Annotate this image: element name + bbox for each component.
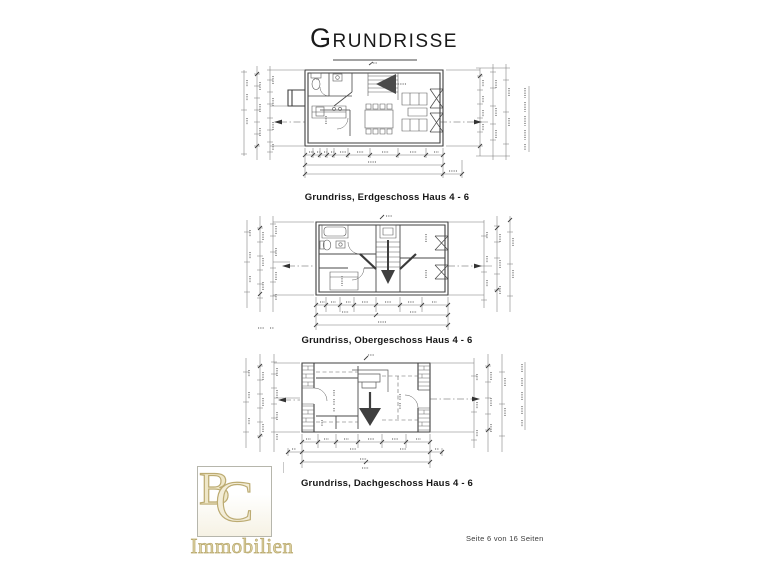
- dimension-numbers: [249, 355, 522, 468]
- dimension-lines: [243, 354, 525, 468]
- page-number: Seite 6 von 16 Seiten: [466, 534, 544, 543]
- center-axis: [284, 399, 474, 400]
- logo-frame-tick: [283, 462, 284, 473]
- furniture: [311, 73, 427, 134]
- partitions: [308, 73, 352, 136]
- dimension-numbers: [250, 216, 513, 328]
- stair-arrow: [359, 392, 381, 426]
- axis-arrow-right: [472, 397, 480, 402]
- caption-erdgeschoss: Grundriss, Erdgeschoss Haus 4 - 6: [305, 192, 469, 203]
- logo-wordmark: Immobilien: [186, 534, 298, 559]
- dimension-ticks: [255, 62, 482, 176]
- company-logo: B C Immobilien: [186, 464, 298, 560]
- window-symbols: [430, 89, 443, 132]
- floorplan-erdgeschoss-drawing: [230, 60, 540, 194]
- page-title: Grundrisse: [0, 25, 768, 52]
- floorplan-obergeschoss-drawing: [230, 212, 540, 348]
- partitions: [316, 366, 358, 429]
- walls: [316, 222, 448, 295]
- axis-arrow-left: [278, 398, 286, 403]
- axis-arrow-left: [282, 264, 290, 269]
- caption-obergeschoss: Grundriss, Obergeschoss Haus 4 - 6: [302, 335, 473, 346]
- stair-arrow: [376, 74, 396, 94]
- document-page: Grundrisse: [0, 0, 768, 567]
- walls: [302, 363, 430, 432]
- axis-arrow-right: [474, 264, 482, 269]
- axis-arrow-right: [474, 120, 482, 125]
- logo-initial-c: C: [215, 473, 254, 531]
- axis-arrow-left: [274, 120, 282, 125]
- caption-dachgeschoss: Grundriss, Dachgeschoss Haus 4 - 6: [301, 478, 473, 489]
- window-symbols: [435, 236, 448, 279]
- dimension-lines: [244, 216, 513, 330]
